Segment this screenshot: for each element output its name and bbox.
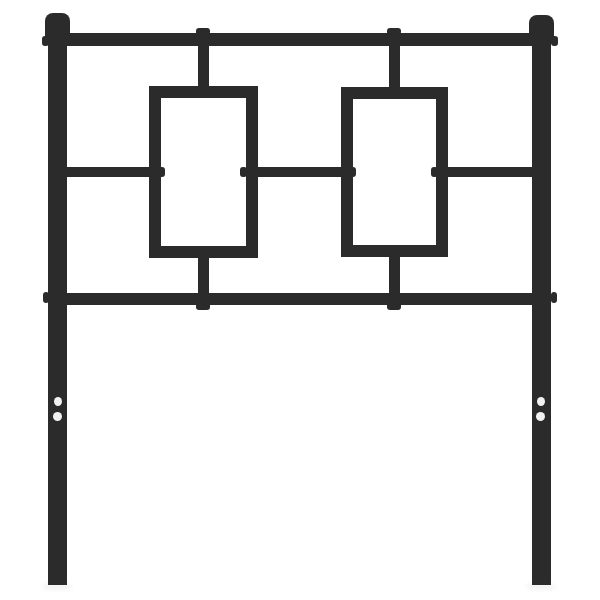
right-leg-mount-hole-top [537, 397, 545, 406]
top-rail [58, 33, 542, 46]
weld-nub-bottom-rail-right [387, 302, 401, 310]
weld-nub-left-post-bottom [43, 292, 49, 303]
middle-rail-center-segment [252, 167, 347, 177]
weld-nub-bottom-rail-left [196, 302, 210, 310]
right-panel-top-stub [389, 44, 400, 91]
weld-nub-left-post-top [42, 36, 49, 46]
right-leg-mount-hole-bottom [536, 412, 545, 421]
middle-rail-right-segment [444, 167, 540, 177]
right-rectangle-frame [341, 87, 448, 257]
left-leg-mount-hole-bottom [53, 412, 62, 421]
left-leg-mount-hole-top [54, 397, 62, 406]
product-photo-metal-headboard [0, 0, 600, 600]
weld-nub-right-post-bottom [551, 292, 557, 303]
left-post-cap [45, 13, 70, 41]
left-panel-top-stub [198, 44, 209, 90]
weld-nub-top-rail-left [196, 28, 210, 35]
bottom-rail [58, 293, 542, 305]
middle-rail-left-segment [60, 167, 155, 177]
weld-nub-right-post-top [551, 36, 558, 46]
left-rectangle-frame [149, 86, 258, 258]
left-panel-bottom-stub [198, 253, 209, 296]
right-panel-bottom-stub [389, 252, 400, 296]
left-post [48, 26, 67, 585]
weld-nub-top-rail-right [387, 28, 401, 35]
right-post [532, 26, 551, 585]
